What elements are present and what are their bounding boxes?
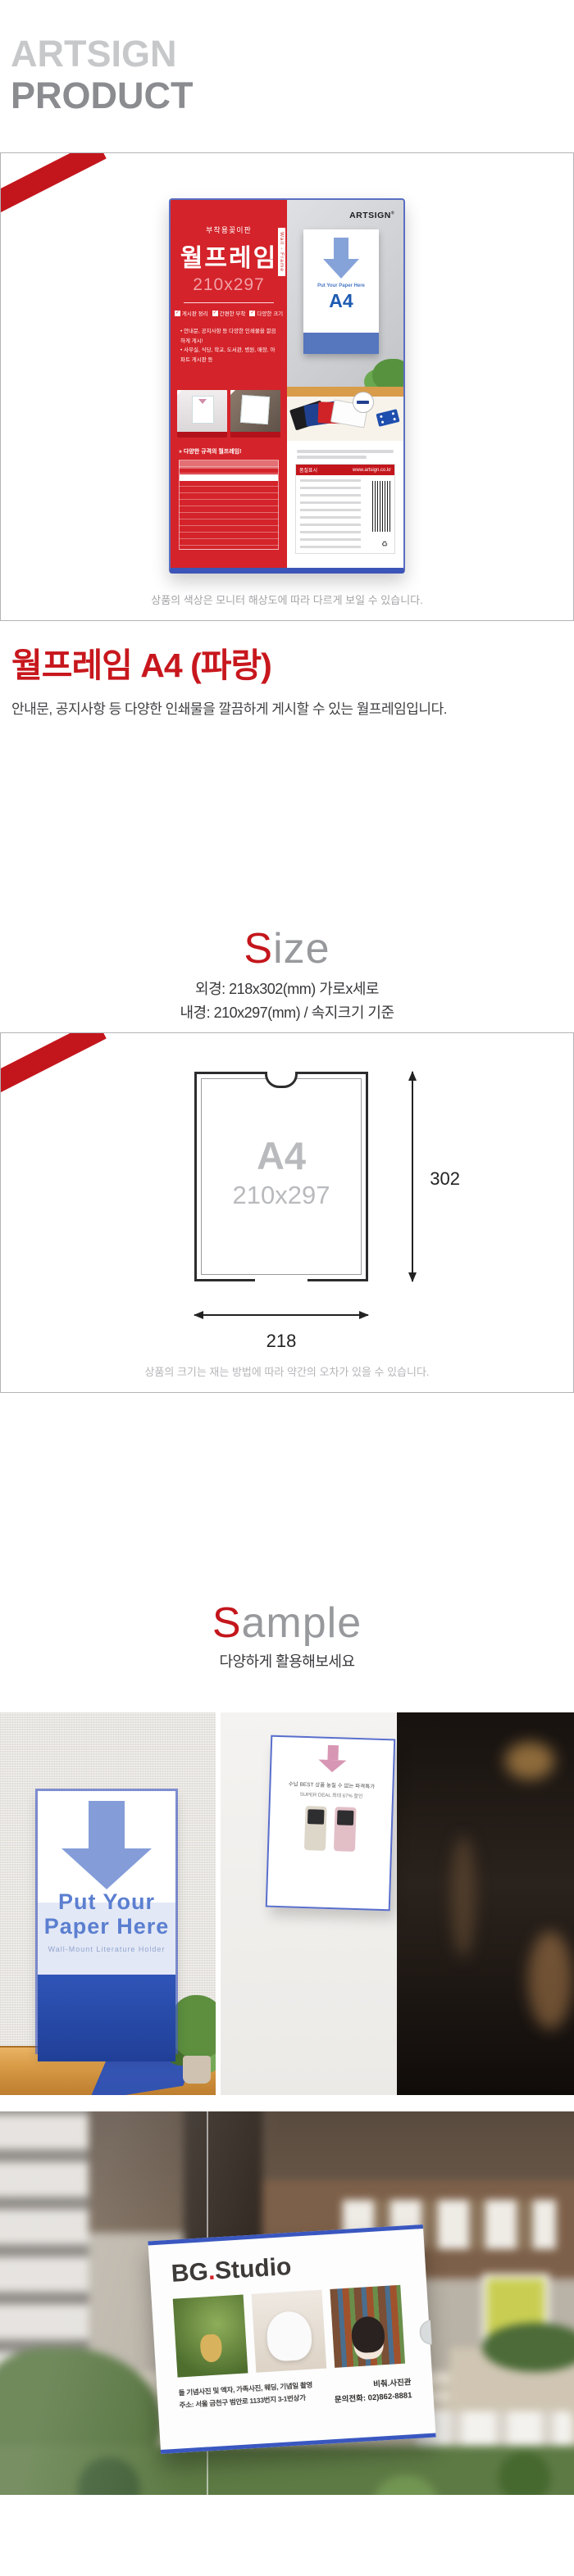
mini-usage-photo — [230, 390, 280, 438]
inner-size-line: 내경: 210x297(mm) / 속지크기 기준 — [0, 1001, 574, 1025]
studio-info: 돌 기념사진 및 액자, 가족사진, 웨딩, 기념일 촬영 주소: 서울 금천구… — [178, 2373, 412, 2417]
bullet-line: • 사무실, 식당, 학교, 도서관, 병원, 매장, 아파트 게시판 등 — [180, 346, 277, 365]
outer-size-line: 외경: 218x302(mm) 가로x세로 — [0, 977, 574, 1001]
height-dimension: 302 — [430, 1168, 460, 1190]
mounting-bracket — [376, 409, 399, 427]
package-bullets: • 안내문, 공지사항 등 다양한 인쇄물을 깔끔하게 게시! • 사무실, 식… — [171, 327, 287, 365]
mini-frame — [240, 395, 270, 425]
poster-headline: 수납 BEST 상품 놓칠 수 없는 파격특가 — [271, 1779, 392, 1791]
blue-acrylic-pocket — [38, 1975, 175, 2061]
down-arrow-icon — [89, 1801, 125, 1848]
insert-paper: Put Your Paper Here Wall-Mount Literatur… — [38, 1801, 175, 1975]
corner-ribbon — [0, 152, 107, 215]
wall-frame-with-insert: Put Your Paper Here Wall-Mount Literatur… — [38, 1791, 175, 2052]
insert-text-line: Put Your — [38, 1889, 175, 1914]
glass-mounted-frame: BG.Studio 돌 기념사진 및 액자, 가족사진, 웨딩, 기념일 촬영 … — [148, 2225, 435, 2454]
down-arrow-icon — [327, 1745, 339, 1760]
studio-info-lines: 돌 기념사진 및 액자, 가족사진, 웨딩, 기념일 촬영 주소: 서울 금천구… — [178, 2379, 313, 2417]
sample-photo-wall: Put Your Paper Here Wall-Mount Literatur… — [0, 1712, 216, 2095]
artsign-logo: ARTSIGN® — [349, 211, 394, 220]
package-product-size: 210x297 — [171, 275, 287, 295]
note-line — [297, 456, 367, 459]
checkbox-icon: ✓ — [249, 311, 255, 316]
paper-size-label: A4 — [197, 1133, 366, 1178]
plant-decoration — [170, 1995, 216, 2059]
baby-photo — [330, 2285, 405, 2368]
down-arrow-icon — [318, 1760, 346, 1773]
vertical-dimension-arrow — [412, 1072, 413, 1281]
baby-photo — [173, 2295, 248, 2378]
feature-label: 간편한 부착 — [220, 309, 246, 317]
checkbox-icon: ✓ — [175, 311, 180, 316]
mini-usage-photo — [177, 390, 227, 438]
package-feature-list: ✓ 게시판 정리 ✓ 간편한 부착 ✓ 다양한 크기 — [171, 309, 287, 317]
package-side-label: Wall - Frame — [278, 228, 285, 276]
studio-contact: 비춰.사진관 문의전화: 02)862-8881 — [333, 2373, 412, 2407]
down-arrow-icon — [334, 238, 348, 259]
feature-label: 게시판 정리 — [182, 309, 208, 317]
size-spec-panel: » 다양한 규격의 월프레임! — [171, 441, 287, 569]
sample-photo-row: Put Your Paper Here Wall-Mount Literatur… — [0, 1712, 574, 2095]
product-title: 월프레임 A4 (파랑) — [11, 648, 563, 683]
arrow-up-icon — [408, 1071, 417, 1081]
detail-inset-circle — [353, 392, 374, 413]
feature-item: ✓ 다양한 크기 — [249, 309, 283, 317]
color-disclaimer: 상품의 색상은 모니터 해상도에 따라 다르게 보일 수 있습니다. — [1, 592, 573, 607]
sample-photo-store: 수납 BEST 상품 놓칠 수 없는 파격특가 SUPER DEAL 최대 67… — [221, 1712, 574, 2095]
spec-table-title: » 다양한 규격의 월프레임! — [179, 447, 279, 456]
bullet-line: • 안내문, 공지사항 등 다양한 인쇄물을 깔끔하게 게시! — [180, 327, 277, 346]
feature-item: ✓ 간편한 부착 — [212, 309, 246, 317]
down-arrow-icon — [61, 1848, 152, 1889]
size-heading: Size — [0, 928, 574, 969]
quality-label-title: 품질표시 — [299, 466, 317, 474]
package-bottom: » 다양한 규격의 월프레임! 품질표시 www.artsign.co.kr — [171, 441, 403, 569]
sample-subtitle: 다양하게 활용해보세요 — [0, 1650, 574, 1671]
package-top: Wall - Frame 부착용꽂이판 월프레임 210x297 ✓ 게시판 정… — [171, 200, 403, 387]
quality-label: 품질표시 www.artsign.co.kr ♻ — [295, 464, 395, 554]
wall-frame-with-poster: 수납 BEST 상품 놓칠 수 없는 파격특가 SUPER DEAL 최대 67… — [266, 1735, 396, 1912]
product-detail-page: ARTSIGN PRODUCT Wall - Frame 부착용꽂이판 월프레임… — [0, 0, 574, 2576]
horizontal-dimension-arrow — [194, 1314, 368, 1316]
package-photo-panel: ARTSIGN® Put Your Paper Here A4 — [287, 200, 403, 387]
arrow-down-icon — [408, 1272, 417, 1282]
mini-frame — [192, 396, 213, 424]
width-dimension: 218 — [194, 1331, 368, 1352]
frame-pocket — [303, 333, 379, 354]
product-description: 안내문, 공지사항 등 다양한 인쇄물을 깔끔하게 게시할 수 있는 월프레임입… — [11, 697, 563, 718]
size-section: Size 외경: 218x302(mm) 가로x세로 내경: 210x297(m… — [0, 729, 574, 1393]
size-disclaimer: 상품의 크기는 재는 방법에 따라 약간의 오차가 있을 수 있습니다. — [1, 1363, 573, 1379]
page-header: ARTSIGN PRODUCT — [0, 0, 574, 152]
bottom-gap — [255, 1279, 307, 1281]
package-middle — [171, 387, 403, 441]
intro-section: 월프레임 A4 (파랑) 안내문, 공지사항 등 다양한 인쇄물을 깔끔하게 게… — [0, 621, 574, 729]
quality-label-rows — [300, 479, 361, 548]
arrow-left-icon — [194, 1311, 203, 1319]
brand-name: ARTSIGN — [11, 33, 574, 75]
down-arrow-icon — [198, 399, 207, 404]
insert-text-line: Paper Here — [38, 1914, 175, 1939]
size-diagram: A4 210x297 302 218 — [194, 1072, 368, 1281]
poster-subline: SUPER DEAL 최대 67% 할인 — [271, 1789, 392, 1801]
quality-label-header: 품질표시 www.artsign.co.kr — [296, 465, 394, 475]
insert-sheet-photo: Put Your Paper Here A4 — [303, 229, 379, 354]
package-red-panel: 부착용꽂이판 월프레임 210x297 ✓ 게시판 정리 ✓ 간편한 부착 — [171, 200, 287, 387]
recycle-icon: ♻ — [381, 540, 388, 549]
tumbler-photo — [304, 1806, 327, 1851]
variant-photos — [287, 387, 403, 441]
studio-poster-title: BG.Studio — [171, 2247, 405, 2288]
photo-gap — [0, 2095, 574, 2111]
usage-photos — [171, 387, 287, 441]
studio-photo-strip — [173, 2284, 410, 2377]
insert-subtitle: Wall-Mount Literature Holder — [38, 1945, 175, 1953]
sample-section: Sample 다양하게 활용해보세요 Put Your Paper Here W… — [0, 1393, 574, 2495]
corner-mark-icon — [230, 390, 235, 395]
tumbler-photo — [334, 1807, 357, 1852]
frame-outline: A4 210x297 — [194, 1072, 368, 1281]
size-diagram-box: A4 210x297 302 218 상품의 크기는 재는 방법에 따라 약간의… — [0, 1032, 574, 1393]
corner-ribbon — [0, 1032, 107, 1095]
size-title: Size — [244, 925, 330, 973]
thumb-notch — [419, 2320, 432, 2346]
feature-item: ✓ 게시판 정리 — [175, 309, 208, 317]
product-package-photo: Wall - Frame 부착용꽂이판 월프레임 210x297 ✓ 게시판 정… — [169, 198, 405, 574]
package-tagline: 부착용꽂이판 — [171, 224, 287, 235]
sample-photo-window: BG.Studio 돌 기념사진 및 액자, 가족사진, 웨딩, 기념일 촬영 … — [0, 2111, 574, 2495]
light-glow — [528, 1931, 572, 2030]
size-specs: 외경: 218x302(mm) 가로x세로 내경: 210x297(mm) / … — [0, 977, 574, 1025]
sample-heading: Sample — [0, 1603, 574, 1644]
poster-product-photos — [269, 1805, 392, 1853]
note-line — [297, 450, 394, 453]
photo-caption-bar — [230, 432, 280, 438]
checkbox-icon: ✓ — [212, 311, 218, 316]
sample-title: Sample — [212, 1599, 362, 1647]
down-arrow-icon — [323, 259, 359, 279]
highlighted-row — [180, 474, 278, 481]
page-title: PRODUCT — [11, 75, 574, 116]
barcode — [372, 481, 390, 532]
corner-mark-icon — [177, 390, 182, 395]
spec-table — [179, 460, 279, 550]
package-product-name: 월프레임 — [171, 238, 287, 274]
light-glow — [451, 1835, 476, 1958]
arrow-right-icon — [359, 1311, 369, 1319]
feature-label: 다양한 크기 — [257, 309, 283, 317]
quality-panel: 품질표시 www.artsign.co.kr ♻ — [287, 441, 403, 569]
product-photo-box: Wall - Frame 부착용꽂이판 월프레임 210x297 ✓ 게시판 정… — [0, 152, 574, 621]
baby-photo — [252, 2290, 327, 2373]
quality-label-url: www.artsign.co.kr — [353, 468, 391, 473]
interior-background — [397, 1712, 574, 2095]
insert-text: Put Your Paper Here — [303, 283, 379, 288]
plant-pot — [183, 2056, 211, 2084]
insert-size-label: A4 — [303, 290, 379, 312]
photo-caption-bar — [177, 432, 227, 438]
divider — [184, 302, 275, 303]
light-glow — [505, 1742, 554, 1780]
paper-dimensions-label: 210x297 — [197, 1181, 366, 1210]
